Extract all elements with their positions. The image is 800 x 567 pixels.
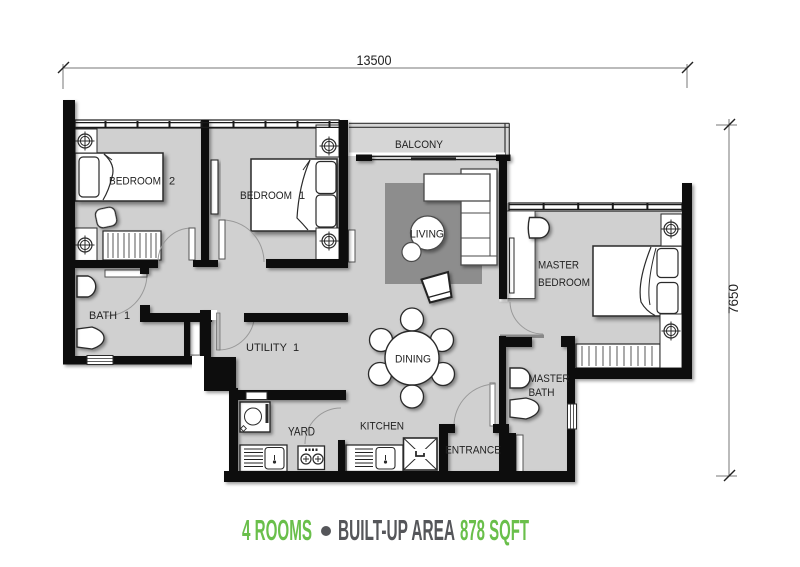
svg-text:BEDROOM: BEDROOM	[538, 277, 590, 289]
svg-text:MASTER: MASTER	[538, 260, 579, 272]
svg-text:ENTRANCE: ENTRANCE	[445, 445, 501, 457]
svg-text:13500: 13500	[357, 52, 392, 68]
svg-text:878 SQFT: 878 SQFT	[460, 515, 529, 547]
svg-text:YARD: YARD	[288, 425, 315, 439]
svg-text:DINING: DINING	[395, 354, 431, 366]
svg-text:BUILT-UP AREA: BUILT-UP AREA	[338, 515, 455, 547]
svg-text:KITCHEN: KITCHEN	[360, 421, 404, 433]
svg-text:MASTER: MASTER	[529, 373, 570, 385]
svg-text:7650: 7650	[725, 284, 741, 314]
svg-text:BALCONY: BALCONY	[395, 139, 444, 151]
svg-text:BATH1: BATH1	[89, 310, 130, 322]
svg-text:BATH: BATH	[529, 387, 555, 399]
svg-text:LIVING: LIVING	[410, 229, 444, 241]
svg-text:4 ROOMS: 4 ROOMS	[242, 515, 312, 547]
